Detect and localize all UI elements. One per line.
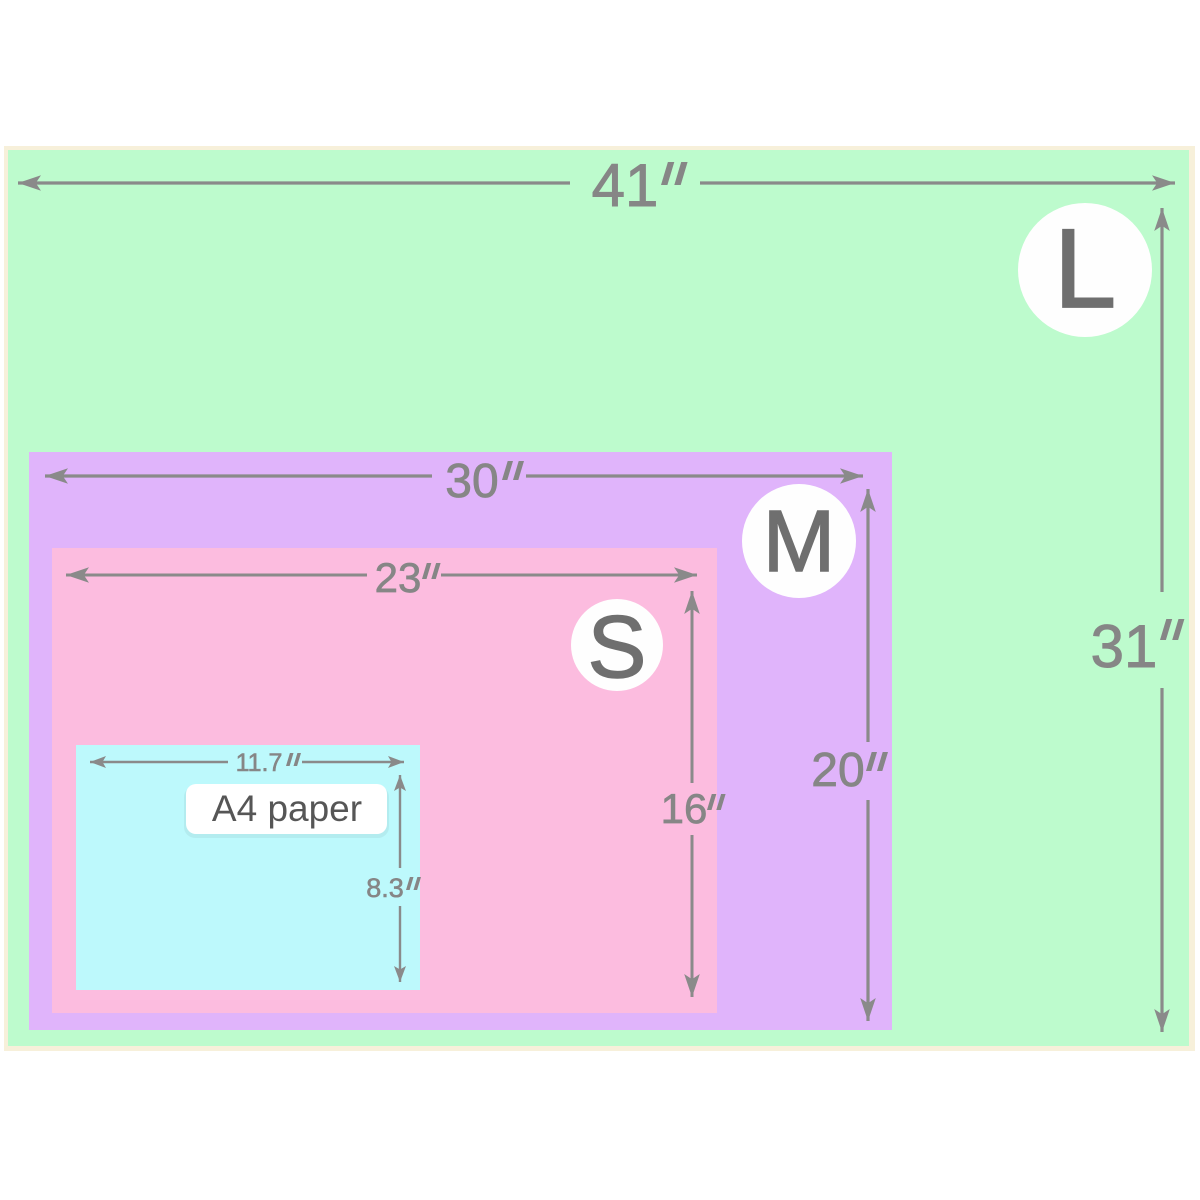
svg-text:L: L (1054, 206, 1116, 331)
svg-text:31: 31 (1091, 613, 1158, 680)
svg-text:41: 41 (592, 152, 659, 219)
svg-text:11.7: 11.7 (236, 749, 283, 777)
svg-text:30: 30 (445, 455, 498, 508)
svg-text:A4 paper: A4 paper (212, 788, 362, 829)
svg-text:S: S (588, 597, 647, 696)
svg-text:23: 23 (375, 554, 422, 601)
svg-text:16: 16 (661, 785, 708, 832)
svg-text:M: M (763, 493, 835, 590)
svg-text:20: 20 (811, 744, 864, 797)
svg-text:8.3: 8.3 (366, 873, 404, 903)
